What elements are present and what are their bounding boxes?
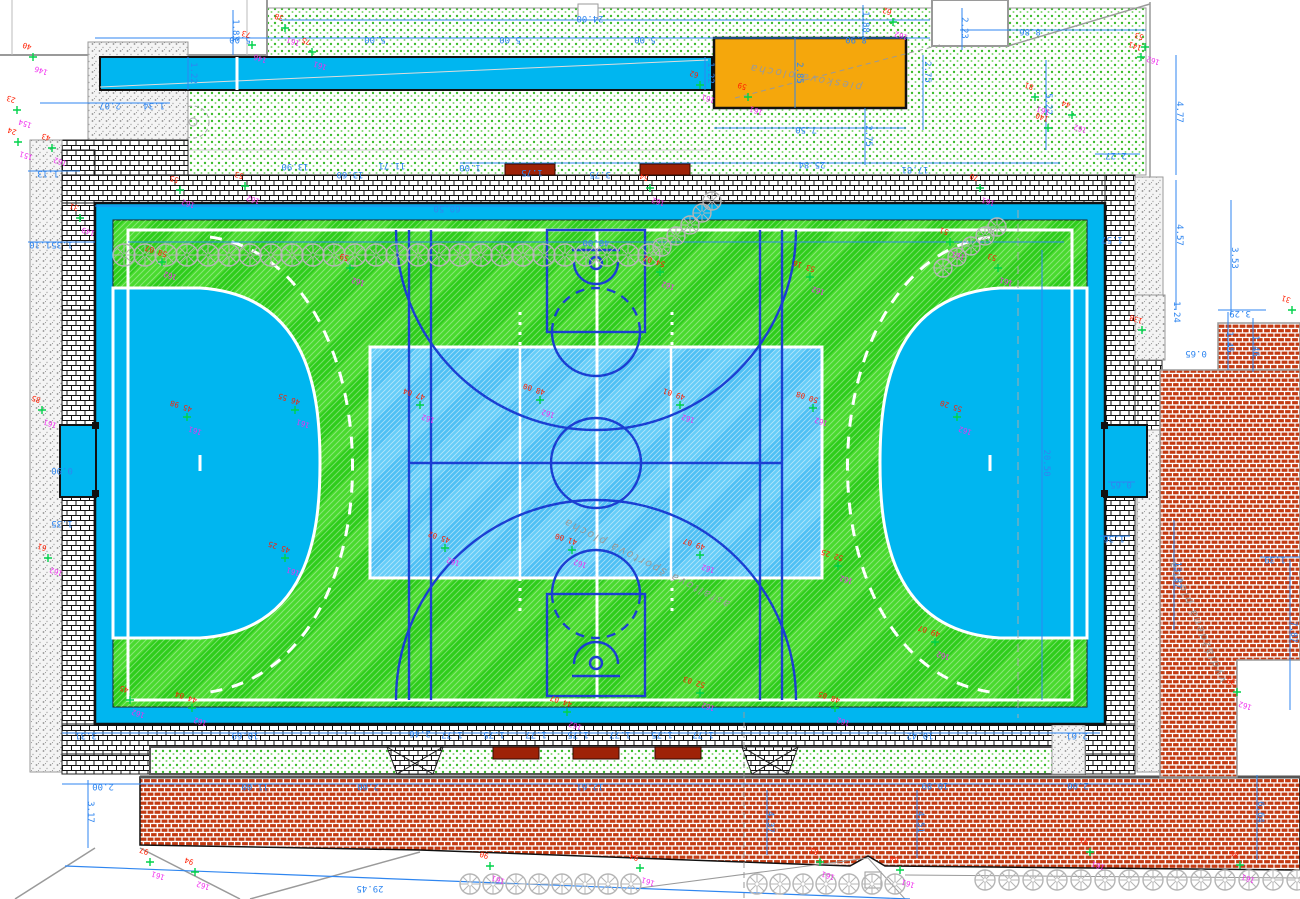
dimension-label: 2.75: [863, 125, 873, 147]
tree-icon: [1215, 870, 1235, 890]
elevation-cross-icon: [1288, 306, 1296, 314]
dimension-label: 4.51: [915, 811, 925, 833]
dimension-label: 1.10: [29, 239, 51, 249]
dimension-label: 5.00: [364, 34, 386, 44]
dimension-label: 4.57: [1174, 224, 1184, 246]
goal-post: [1101, 490, 1108, 497]
dimension-label: 10.89: [921, 780, 948, 790]
spot-elevation: 16190: [478, 849, 506, 886]
goal-post: [92, 490, 99, 497]
tree-icon: [1263, 870, 1283, 890]
dimension-label: 13.90: [281, 161, 308, 171]
tree-icon: [460, 874, 480, 894]
goal-post: [92, 422, 99, 429]
spot-elevation: 16294: [183, 855, 211, 892]
dimension-label: 25.84: [798, 159, 825, 169]
dimension-label: 1.46: [1250, 335, 1260, 357]
dimension-label: 2.75: [922, 61, 932, 83]
elevation-main-value: 154: [17, 117, 33, 130]
gravel-block-bottom: [1052, 718, 1085, 774]
dimension-label: 2.27: [1105, 150, 1127, 160]
dimension-label: 3.75: [589, 169, 611, 179]
dimension-label: 13.87: [1172, 561, 1182, 588]
bench: [640, 164, 690, 175]
spot-elevation: 31: [1280, 293, 1296, 314]
dimension-label: 2.23: [959, 17, 969, 39]
tree-icon: [1167, 870, 1187, 890]
dimension-label: 1.75: [651, 729, 673, 739]
elevation-decimal-value: 94: [183, 855, 195, 866]
elevation-decimal-value: 23: [5, 93, 16, 104]
elevation-decimal-value: 31: [1280, 293, 1291, 304]
dimension-label: 1.22: [188, 62, 198, 84]
dimension-label: 1.36: [1103, 533, 1125, 543]
elevation-cross-icon: [636, 864, 644, 872]
dimension-label: 1.35: [51, 518, 73, 528]
tree-icon: [552, 874, 572, 894]
dimension-label: 1.35: [51, 239, 73, 249]
dimension-label: 1.22: [705, 62, 715, 84]
dimension-label: 8.86: [1019, 26, 1041, 36]
spot-elevation: 16197: [138, 845, 166, 882]
dimension-label: 40.00: [582, 237, 609, 247]
tree-icon: [1191, 870, 1211, 890]
dimension-label: 2.85: [794, 62, 804, 84]
elevation-decimal-value: 62: [881, 5, 892, 16]
dimension-label: 2.00: [1067, 780, 1089, 790]
dimension-label: 60.50: [433, 203, 460, 213]
dimension-label: 0.65: [1110, 479, 1132, 489]
dimension-label: 12.61: [576, 781, 603, 791]
dimension-label: 2.46: [409, 728, 431, 738]
dimension-label: 1.77: [441, 729, 463, 739]
dimension-label: 1.13: [37, 168, 59, 178]
spot-elevation: 15423: [5, 93, 33, 130]
brick-bottom-left: [62, 754, 150, 774]
site-plan-drawing: piesková plochaasfaltová športová plocha…: [0, 0, 1300, 899]
dimension-label: 1.88: [860, 11, 870, 33]
tree-icon: [770, 874, 790, 894]
dimension-label: 1.77: [609, 729, 631, 739]
path-edge: [15, 848, 95, 899]
elevation-main-value: 161: [900, 877, 916, 890]
elevation-cross-icon: [14, 138, 22, 146]
bench: [655, 747, 701, 759]
goal-area-left: [113, 288, 320, 638]
dimension-label: 1.45: [1224, 331, 1234, 353]
dimension-label: 2.00: [92, 781, 114, 791]
dimension-label: 5.00: [634, 34, 656, 44]
tree-icon: [793, 874, 813, 894]
dimension-label: 8.90: [845, 34, 867, 44]
ramp-shape: [387, 747, 443, 774]
tree-icon: [575, 874, 595, 894]
goal-recess-left: [60, 425, 96, 497]
path-edge: [250, 852, 420, 899]
dimension-label: 5.00: [499, 34, 521, 44]
dimension-label: 10.69: [231, 730, 258, 740]
goal-area-right: [880, 288, 1087, 638]
elevation-cross-icon: [486, 862, 494, 870]
elevation-cross-icon: [146, 858, 154, 866]
dimension-label: 4.37: [765, 811, 775, 833]
tree-icon: [598, 874, 618, 894]
elevation-main-value: 161: [150, 869, 166, 882]
tree-icon: [1023, 870, 1043, 890]
bench: [493, 747, 539, 759]
dimension-label: 3.53: [1229, 247, 1239, 269]
dimension-label: 24.00: [576, 13, 603, 23]
elevation-main-value: 161: [1240, 872, 1256, 885]
elevation-decimal-value: 43: [40, 131, 51, 142]
dimension-label: 1.00: [459, 162, 481, 172]
tree-icon: [1119, 870, 1139, 890]
dimension-label: 2.00: [357, 781, 379, 791]
gravel-col-right-upper: [1135, 177, 1163, 295]
dimension-label: 6.64: [1255, 801, 1265, 823]
dimension-label: 3.17: [85, 801, 95, 823]
brick-bottom-right: [1085, 754, 1135, 774]
dimension-label: 1.57: [1101, 234, 1123, 244]
bench: [573, 747, 619, 759]
tree-icon: [1095, 870, 1115, 890]
dimension-label: 13.60: [336, 169, 363, 179]
tree-icon: [1047, 870, 1067, 890]
tree-icon: [747, 874, 767, 894]
elevation-cross-icon: [13, 106, 21, 114]
tree-icon: [999, 870, 1019, 890]
elevation-main-value: 162: [1145, 54, 1161, 67]
dimension-label: 1.34: [143, 100, 165, 110]
elevation-main-value: 162: [195, 879, 211, 892]
dimension-label: 7.50: [795, 124, 817, 134]
dimension-label: 1.24: [1171, 301, 1181, 323]
ramp-left: [387, 747, 443, 774]
elevation-main-value: 146: [33, 64, 49, 77]
paved-area-bottom: [140, 777, 1300, 870]
dimension-label: 10.42: [906, 730, 933, 740]
multi-sport-court: [60, 203, 1147, 724]
dimension-label: 11.00: [241, 781, 268, 791]
elevation-main-value: 161: [490, 873, 506, 886]
dimension-label: 0.65: [1185, 348, 1207, 358]
elevation-main-value: 161: [640, 875, 656, 888]
building-area: [932, 0, 1008, 46]
dimension-label: 1.75: [521, 167, 543, 177]
gravel-band-left: [30, 140, 62, 772]
dimension-label: 17.81: [901, 164, 928, 174]
tree-icon: [621, 874, 641, 894]
dimension-label: 29.45: [356, 883, 383, 893]
elevation-decimal-value: 24: [6, 125, 18, 136]
dimension-label: 4.77: [1174, 101, 1184, 123]
dimension-label: 1.83: [230, 19, 240, 41]
dimension-label: 1.39: [1264, 554, 1286, 564]
dimension-label: 3.29: [1229, 308, 1251, 318]
ramp-shape: [742, 747, 798, 774]
dimension-label: 20.50: [1041, 449, 1051, 476]
elevation-decimal-value: 97: [138, 845, 149, 856]
dimension-label: 1.77: [692, 729, 714, 739]
tree-icon: [839, 874, 859, 894]
dimension-label: 11.71: [378, 160, 405, 170]
dimension-label: 7.87: [1288, 621, 1298, 643]
tree-icon: [1071, 870, 1091, 890]
dimension-label: 2.07: [99, 100, 121, 110]
elevation-main-value: 162: [1237, 699, 1253, 712]
dimension-label: 1.77: [525, 729, 547, 739]
elevation-cross-icon: [896, 866, 904, 874]
tree-icon: [975, 870, 995, 890]
dimension-label: 2.61: [1066, 730, 1088, 740]
site-plan-sheet: piesková plochaasfaltová športová plocha…: [0, 0, 1300, 899]
dimension-label: 3.31: [75, 730, 97, 740]
dimension-label: 1.75: [483, 729, 505, 739]
tree-icon: [1287, 870, 1300, 890]
ramp-right: [742, 747, 798, 774]
gravel-block-right: [1135, 295, 1165, 360]
brick-patch-right: [1135, 360, 1162, 430]
dimension-label: 0.90: [51, 465, 73, 475]
tree-icon: [1143, 870, 1163, 890]
goal-post: [1101, 422, 1108, 429]
